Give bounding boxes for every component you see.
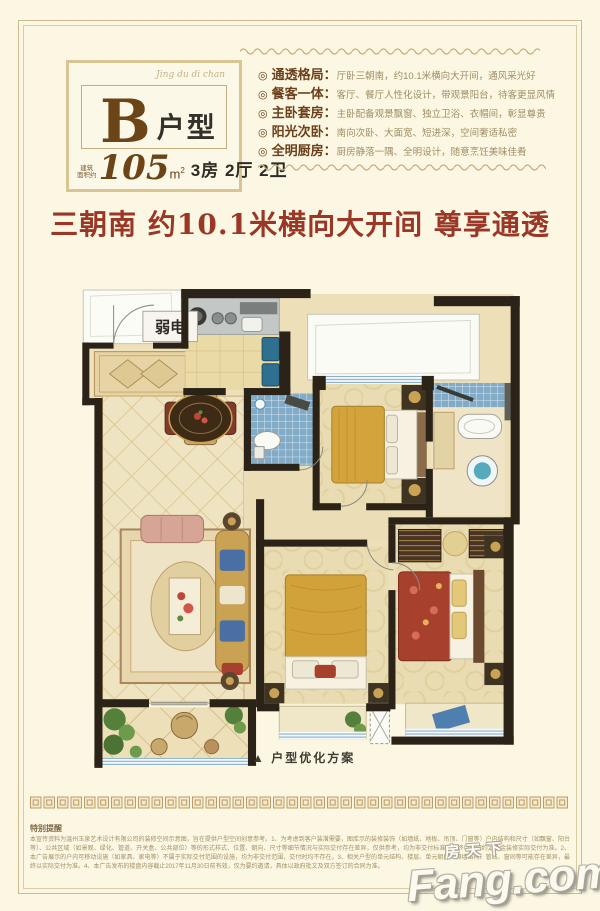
feature-item: ◎全明厨房：厨房静落一隅、全明设计，随意烹饪美味佳肴 [258,140,552,159]
bullet-icon: ◎ [258,107,268,120]
area-value: 105 [99,153,170,183]
bullet-icon: ◎ [258,126,268,139]
floorplan-caption: ▲ 户型优化方案 [252,749,355,766]
basin [262,364,279,386]
kitchen-sink [242,317,262,331]
window [326,376,422,384]
decorative-band [30,796,570,809]
burner [225,313,236,324]
kitchen [185,298,279,390]
unit-type-label: 户型 [157,106,217,146]
guest-bathroom [249,393,315,466]
unit-letter: B [100,94,151,150]
floor-plan-container: 弱电 [80,287,520,777]
svg-text:弱电: 弱电 [155,318,185,336]
foyer [88,349,195,400]
area-note: 建筑面积约 [77,165,97,179]
fang-watermark-en: Fang.com [406,851,600,909]
headboard [473,570,484,663]
burner [212,313,223,324]
wardrobe [399,529,441,561]
living-room [121,512,250,690]
disclaimer-title: 特别提醒 [30,823,570,834]
bullet-icon: ◎ [258,145,268,158]
headline: 三朝南 约10.1米横向大开间 尊享通透 [0,203,600,243]
badge-script-text: Jing du di chan [156,70,225,80]
feature-item: ◎阳光次卧：南向次卧、大面宽、短进深，空间奢适私密 [258,121,552,140]
shower-head [255,399,265,409]
bed-cover [285,575,366,660]
armchair-sofa [141,515,204,542]
equipment-platform [308,314,480,380]
feature-item: ◎通透格局：厅卧三朝南，约10.1米横向大开间，通风采光好 [258,64,552,83]
bullet-icon: ◎ [258,69,268,82]
basin [262,338,279,361]
headboard [416,412,427,477]
balcony-table [205,740,219,754]
badge-inner-frame: B 户型 [81,85,227,149]
balcony [102,706,247,766]
bedroom-2 [320,383,428,503]
master-bathroom [431,383,505,515]
unit-badge: Jing du di chan B 户型 建筑面积约 105 m2 3房 2厅 … [66,60,242,192]
weak-current-box: 弱电 [143,311,198,341]
feature-list: ◎通透格局：厅卧三朝南，约10.1米横向大开间，通风采光好 ◎餐客一体：客厅、餐… [258,64,552,159]
bed-cover [332,406,385,483]
unit-area-row: 建筑面积约 105 m2 3房 2厅 2卫 [77,153,235,183]
feature-item: ◎主卧套房：主卧配备观景飘窗、独立卫浴、衣帽间，彰显尊贵 [258,102,552,121]
feature-item: ◎餐客一体：客厅、餐厅人性化设计，带观景阳台，待客更显风情 [258,83,552,102]
floor-plan: 弱电 [80,287,520,778]
area-unit: m2 [169,166,184,181]
dining-table [169,394,232,442]
bed-cover [399,572,453,661]
bullet-icon: ◎ [258,88,268,101]
wavy-divider-mid [258,161,546,173]
fang-watermark: 房天下 Fang.com [404,830,600,909]
master-bedroom [395,524,506,736]
wavy-divider-top [240,45,540,58]
